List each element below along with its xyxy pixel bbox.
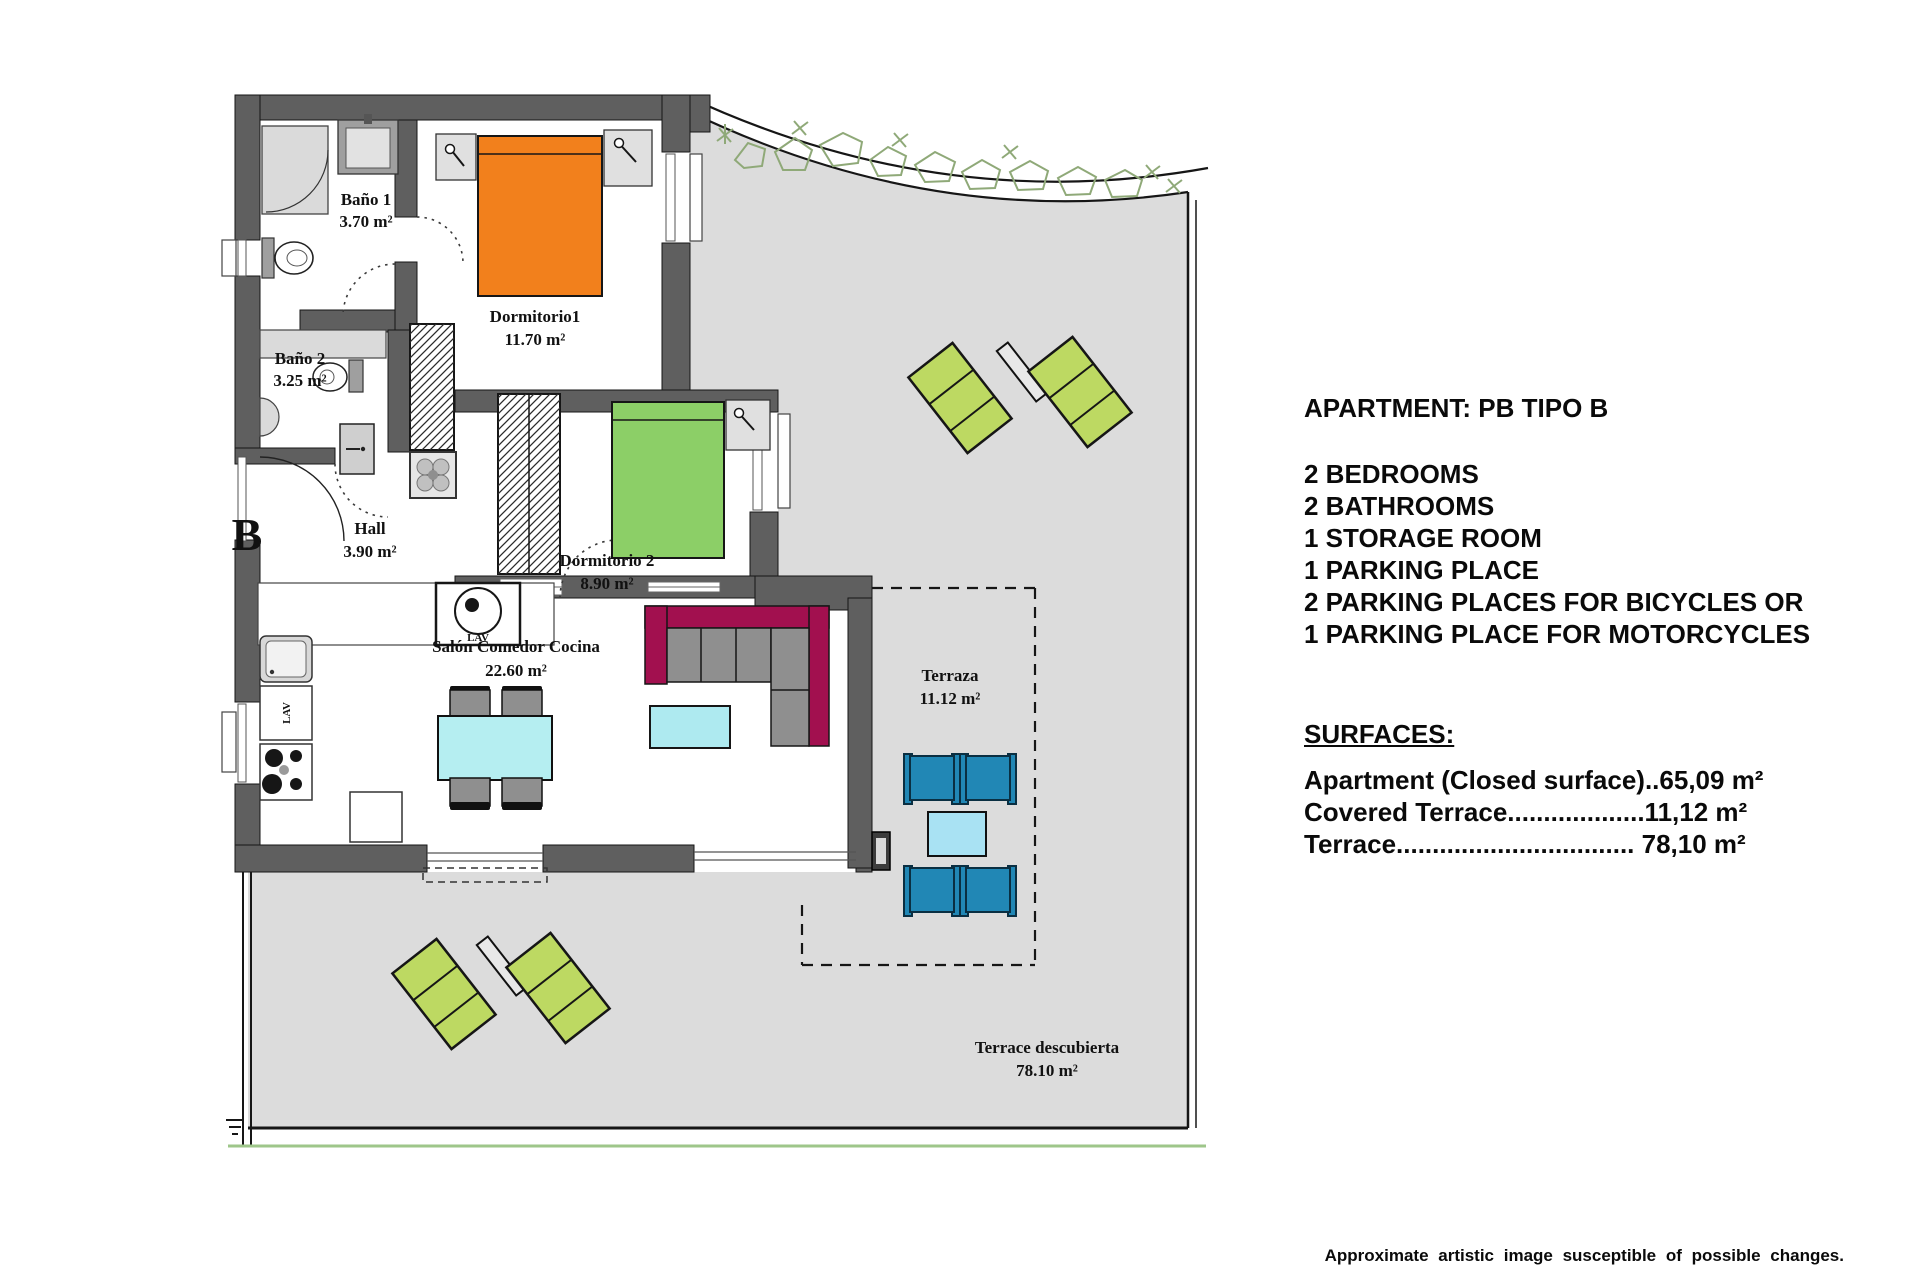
surface-terrace: Terrace.................................… xyxy=(1304,828,1920,860)
surfaces-list: Apartment (Closed surface)..65,09 m² Cov… xyxy=(1304,764,1920,860)
nightstand xyxy=(726,400,770,450)
feature-list: 2 BEDROOMS 2 BATHROOMS 1 STORAGE ROOM 1 … xyxy=(1304,458,1920,650)
label-dormitorio1-area: 11.70 m² xyxy=(505,330,566,349)
label-terraza-area: 11.12 m² xyxy=(920,689,981,708)
surface-apartment: Apartment (Closed surface)..65,09 m² xyxy=(1304,764,1920,796)
label-dormitorio1: Dormitorio1 xyxy=(490,307,581,326)
label-dormitorio2-area: 8.90 m² xyxy=(580,574,633,593)
terrace-chair xyxy=(910,868,954,912)
dining-chair xyxy=(502,778,542,806)
label-salon-area: 22.60 m² xyxy=(485,661,547,680)
dining-chair xyxy=(450,778,490,806)
info-panel: APARTMENT: PB TIPO B 2 BEDROOMS 2 BATHRO… xyxy=(1304,392,1920,860)
label-bano2-area: 3.25 m² xyxy=(273,371,326,390)
toilet-tank xyxy=(262,238,274,278)
shower-tray xyxy=(262,126,328,214)
label-bano1-area: 3.70 m² xyxy=(339,212,392,231)
floor-plan: LAV LAV xyxy=(0,0,1230,1280)
toilet-tank xyxy=(349,360,363,392)
lamp-icon xyxy=(615,139,624,148)
disclaimer-text: Approximate artistic image susceptible o… xyxy=(1325,1246,1844,1266)
coffee-table xyxy=(650,706,730,748)
nightstand xyxy=(604,130,652,186)
floorplan-page: LAV LAV xyxy=(0,0,1920,1280)
feature-motorcycle-parking: 1 PARKING PLACE FOR MOTORCYCLES xyxy=(1304,618,1920,650)
dining-table xyxy=(438,716,552,780)
dining-chair xyxy=(450,690,490,718)
label-terrace-descubierta: Terrace descubierta xyxy=(975,1038,1120,1057)
lamp-icon xyxy=(446,145,455,154)
apartment-title: APARTMENT: PB TIPO B xyxy=(1304,392,1920,424)
terrace-chair xyxy=(966,868,1010,912)
terrace-table xyxy=(928,812,986,856)
label-terrace-descubierta-area: 78.10 m² xyxy=(1016,1061,1078,1080)
bed-dormitorio2 xyxy=(612,402,724,558)
sofa-cushions xyxy=(667,628,771,682)
label-dormitorio2: Dormitorio 2 xyxy=(560,551,655,570)
feature-bathrooms: 2 BATHROOMS xyxy=(1304,490,1920,522)
lamp-icon xyxy=(735,409,744,418)
sofa-chaise xyxy=(771,628,809,746)
label-terraza: Terraza xyxy=(922,666,979,685)
label-bano2: Baño 2 xyxy=(275,349,326,368)
feature-storage: 1 STORAGE ROOM xyxy=(1304,522,1920,554)
surfaces-heading: SURFACES: xyxy=(1304,718,1920,750)
bed-dormitorio1 xyxy=(478,136,602,296)
kitchen-island xyxy=(350,792,402,842)
terrace-chair xyxy=(910,756,954,800)
label-salon: Salón Comedor Cocina xyxy=(432,637,600,656)
feature-bicycle-parking: 2 PARKING PLACES FOR BICYCLES OR xyxy=(1304,586,1920,618)
feature-parking: 1 PARKING PLACE xyxy=(1304,554,1920,586)
block-letter: B xyxy=(232,509,263,560)
label-bano1: Baño 1 xyxy=(341,190,392,209)
washer-label: LAV xyxy=(281,702,293,724)
terrace-chair xyxy=(966,756,1010,800)
surface-covered-terrace: Covered Terrace...................11,12 … xyxy=(1304,796,1920,828)
feature-bedrooms: 2 BEDROOMS xyxy=(1304,458,1920,490)
label-hall: Hall xyxy=(354,519,385,538)
label-hall-area: 3.90 m² xyxy=(343,542,396,561)
dining-chair xyxy=(502,690,542,718)
